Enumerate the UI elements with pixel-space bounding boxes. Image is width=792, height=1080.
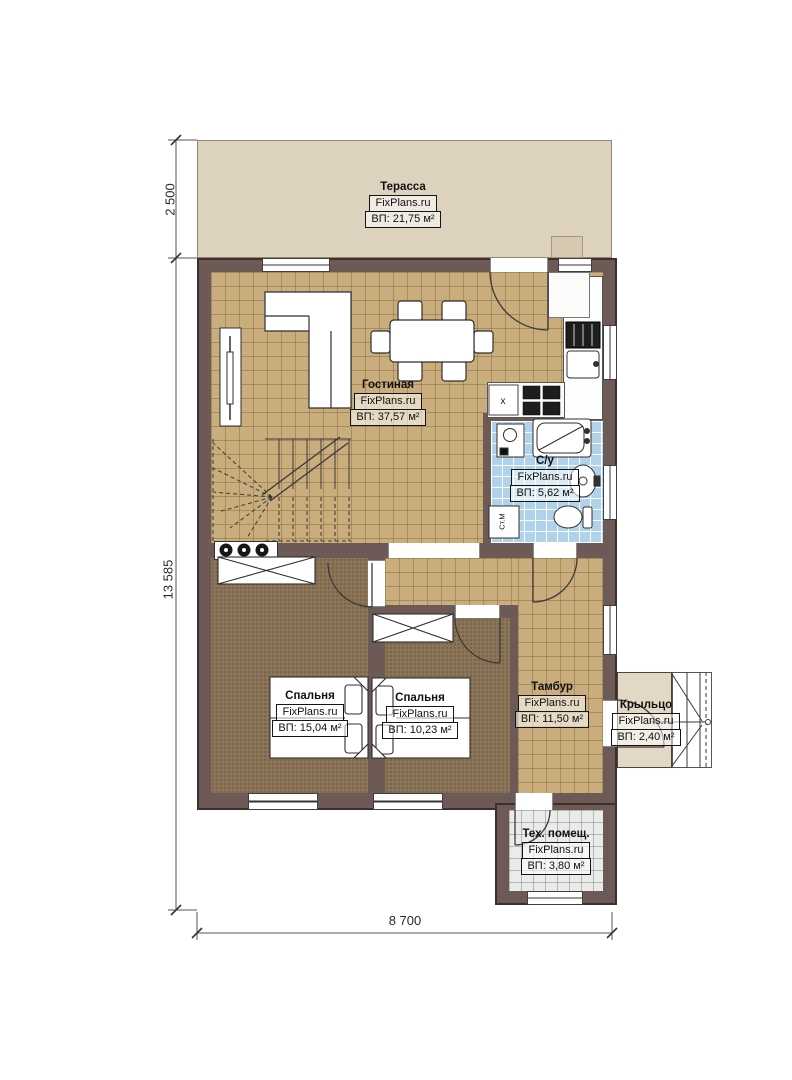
dimension-terrace-depth: 2 500 bbox=[163, 170, 178, 230]
room-label-bathroom: С/у FixPlans.ru ВП: 5,62 м² bbox=[495, 455, 595, 502]
kitchen-window-top bbox=[558, 258, 592, 272]
tambur-window-right bbox=[603, 605, 617, 655]
living-corridor-passage bbox=[388, 543, 480, 558]
dimension-terrace-depth-value: 2 500 bbox=[163, 183, 178, 216]
room-label-tech: Тех. помещ. FixPlans.ru ВП: 3,80 м² bbox=[506, 828, 606, 875]
living-window-top bbox=[262, 258, 330, 272]
room-label-porch: Крыльцо FixPlans.ru ВП: 2,40 м² bbox=[596, 699, 696, 746]
bedroom2-window-bottom bbox=[373, 793, 443, 810]
bedroom1-floor bbox=[211, 558, 368, 793]
room-label-bedroom2: Спальня FixPlans.ru ВП: 10,23 м² bbox=[370, 692, 470, 739]
kitchen-window-right bbox=[603, 325, 617, 380]
bathroom-door-opening bbox=[533, 543, 577, 558]
bedroom1-door-opening bbox=[368, 560, 385, 607]
floor-plan-canvas: x bbox=[0, 0, 792, 1080]
kitchen-corner-cabinet bbox=[548, 272, 590, 318]
bedroom2-door-opening bbox=[455, 605, 500, 618]
washing-machine-label: Ст.М bbox=[498, 506, 507, 538]
room-label-bedroom1: Спальня FixPlans.ru ВП: 15,04 м² bbox=[260, 690, 360, 737]
terrace-door-opening bbox=[490, 258, 548, 272]
bedroom1-window-bottom bbox=[248, 793, 318, 810]
bathroom-window-right bbox=[603, 465, 617, 520]
dimension-total-depth: 13 585 bbox=[161, 540, 176, 620]
dimension-total-width: 8 700 bbox=[360, 913, 450, 928]
dimension-total-depth-value: 13 585 bbox=[161, 560, 176, 600]
room-label-tambur: Тамбур FixPlans.ru ВП: 11,50 м² bbox=[502, 681, 602, 728]
kitchen-counter-bottom bbox=[487, 382, 565, 418]
room-label-terrace: Терасса FixPlans.ru ВП: 21,75 м² bbox=[353, 181, 453, 228]
tech-door-opening bbox=[515, 793, 553, 810]
terrace-doormat bbox=[551, 236, 583, 258]
dimension-total-width-value: 8 700 bbox=[389, 913, 422, 928]
ventilation-block bbox=[214, 541, 278, 560]
tambur-floor bbox=[518, 558, 603, 793]
tech-window-bottom bbox=[527, 891, 583, 905]
bathroom-wall-left bbox=[483, 413, 491, 543]
room-label-living: Гостиная FixPlans.ru ВП: 37,57 м² bbox=[338, 379, 438, 426]
